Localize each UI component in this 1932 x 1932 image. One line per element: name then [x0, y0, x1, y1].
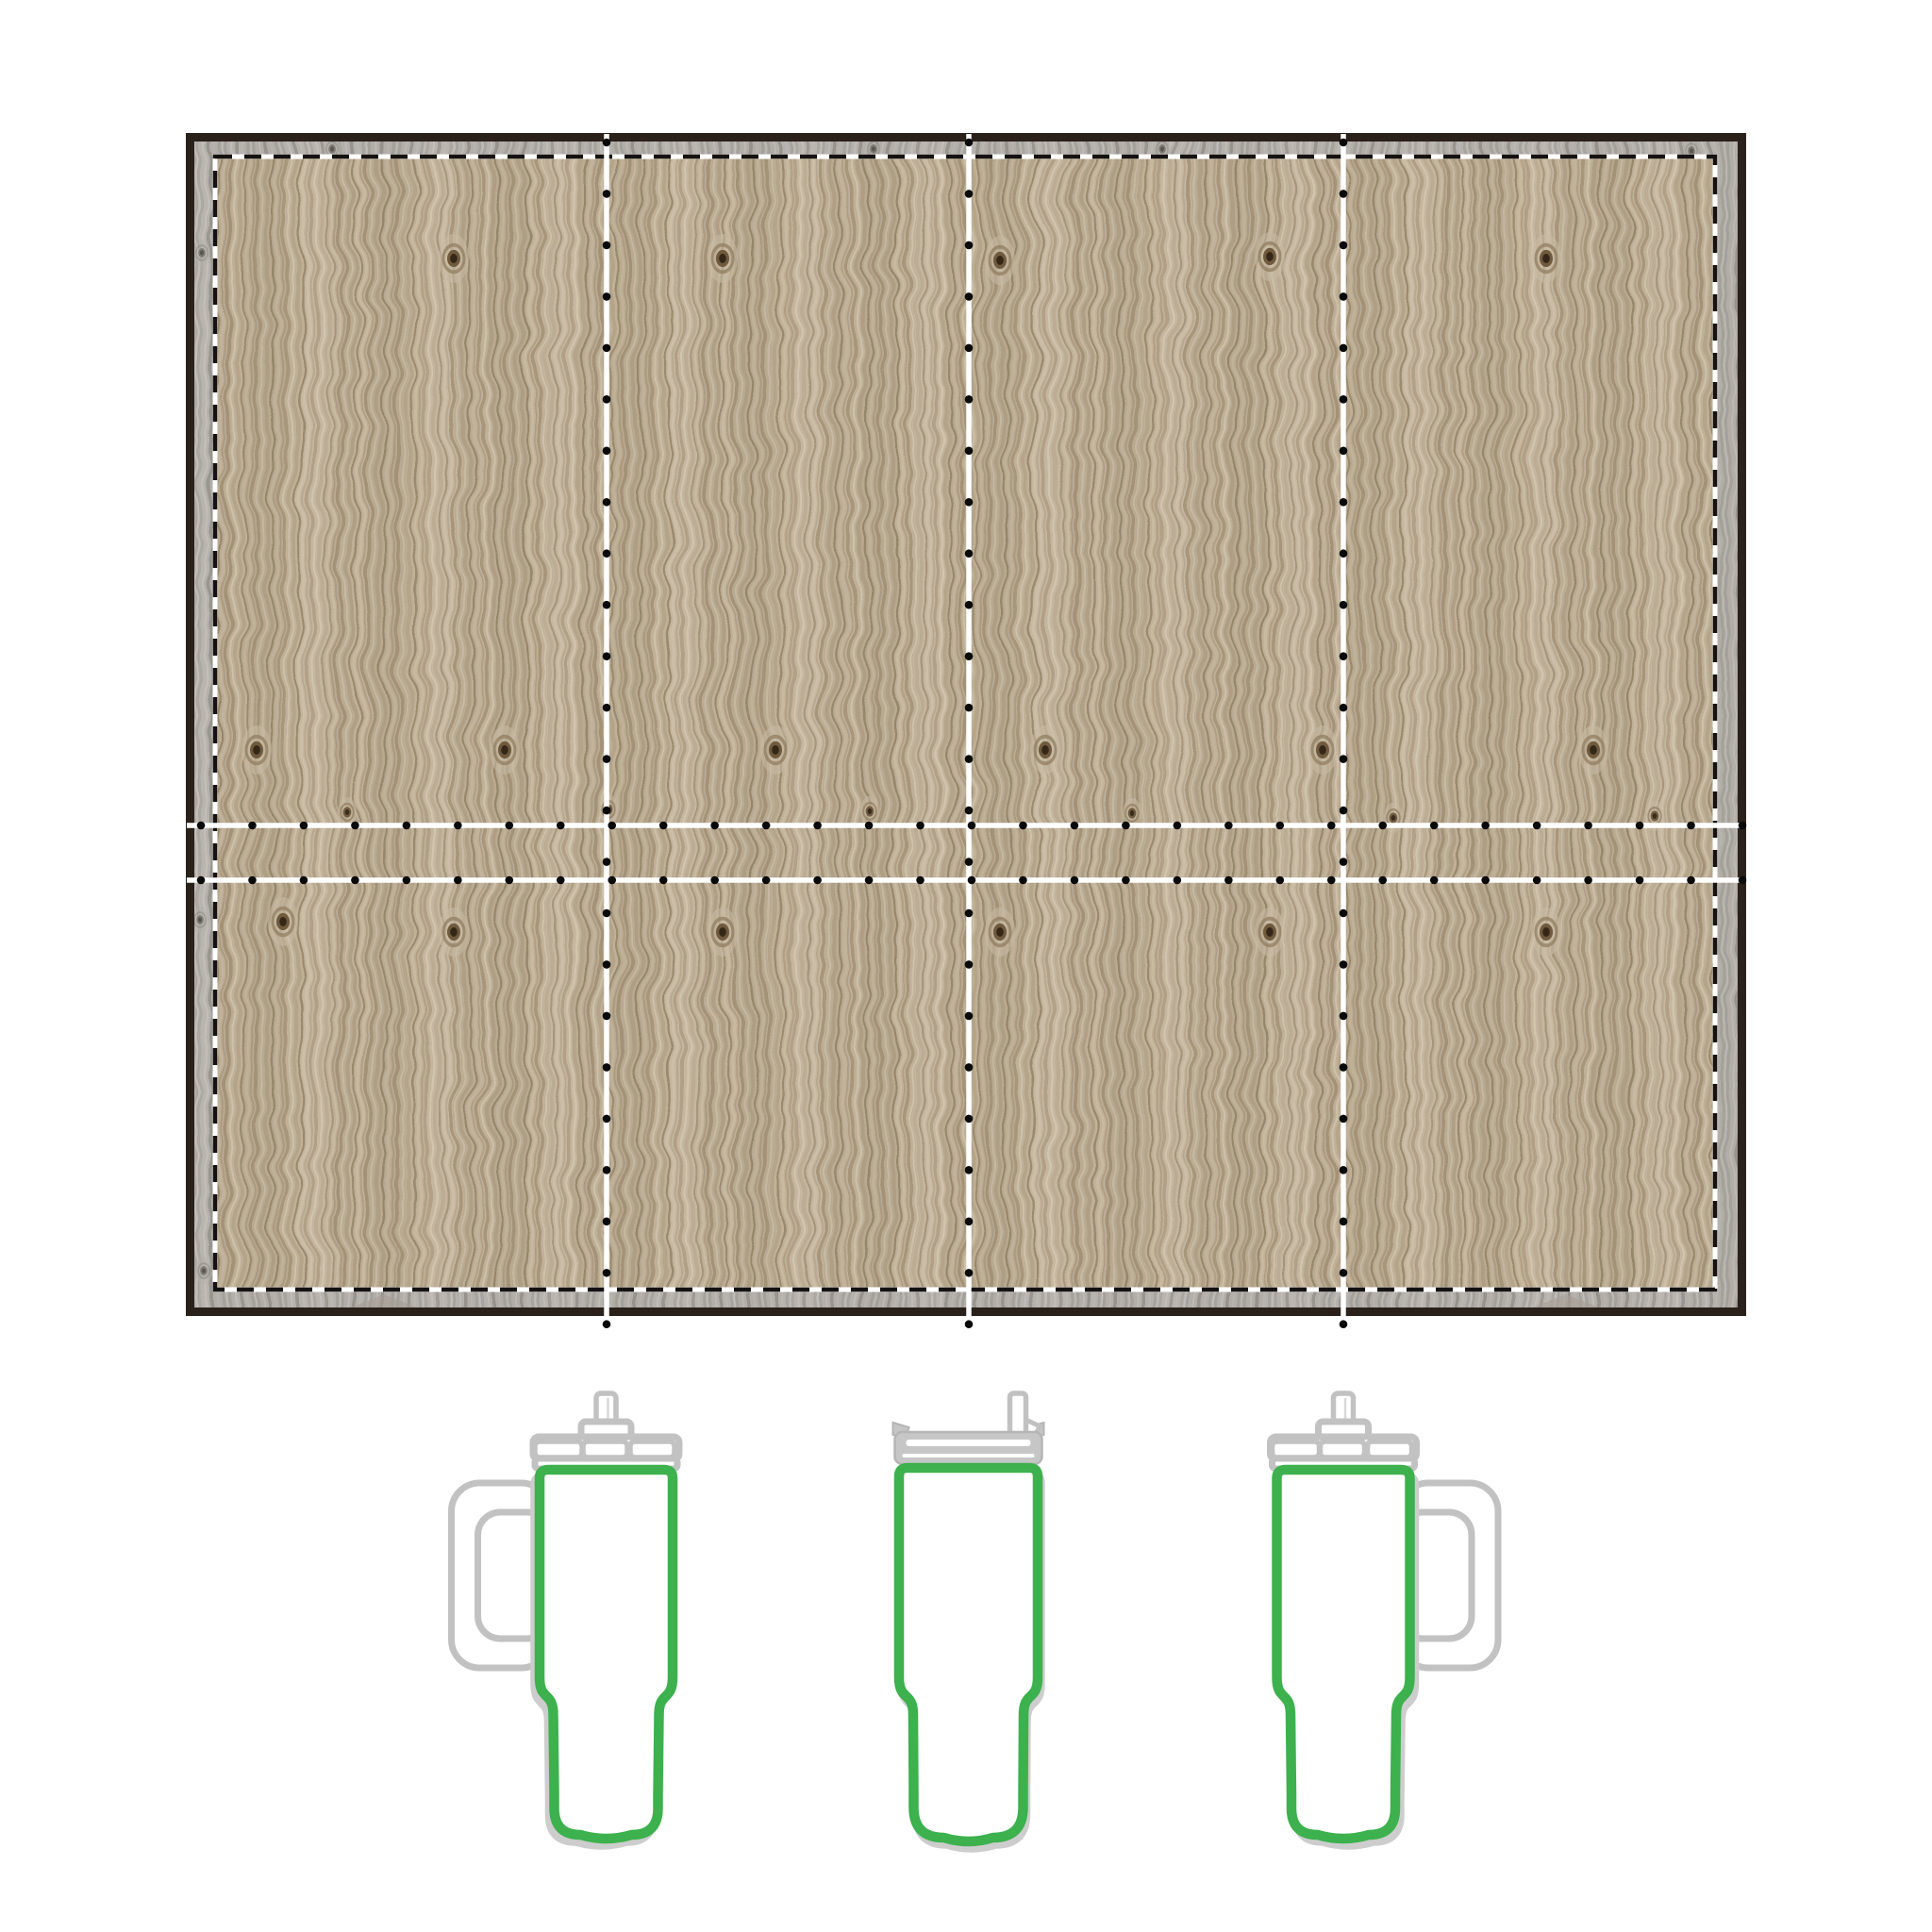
cut-dot [248, 822, 257, 830]
cut-dot [1327, 822, 1336, 830]
shape [996, 256, 1004, 265]
wood-knot [1255, 232, 1285, 281]
shape [1590, 745, 1597, 755]
shape [253, 745, 260, 755]
cut-dot [762, 876, 771, 885]
cut-dot [557, 822, 565, 830]
cut-dot [1533, 822, 1541, 830]
cut-dot [603, 395, 611, 404]
cut-dot [603, 1269, 611, 1277]
cut-dot [603, 1218, 611, 1226]
cut-dot [1019, 822, 1027, 830]
shape [1542, 254, 1550, 263]
cut-dot [603, 344, 611, 353]
cut-dot [1340, 241, 1348, 250]
cut-dot [965, 1166, 974, 1174]
shape [1130, 810, 1135, 816]
cut-dot [506, 876, 514, 885]
wrap-body-outline [1277, 1470, 1410, 1839]
cut-dot [1224, 822, 1233, 830]
cut-dot [1687, 876, 1695, 885]
lid-slot [907, 1440, 1031, 1446]
tumbler-wrap-print-template [0, 0, 1932, 1932]
cut-dot [1340, 1269, 1348, 1277]
cut-dot [608, 822, 616, 830]
lid-cell [630, 1441, 675, 1457]
cut-dot [965, 858, 974, 866]
cut-dot [603, 1166, 611, 1174]
cut-dot [965, 447, 974, 456]
cut-dot [965, 1320, 974, 1328]
wood-knot [708, 234, 738, 283]
cut-dot [1340, 549, 1348, 558]
cut-dot [1584, 822, 1592, 830]
main-wood [177, 119, 1753, 1327]
cut-dot [603, 447, 611, 456]
cut-dot [603, 1012, 611, 1021]
shape [200, 250, 204, 255]
cut-dot [603, 241, 611, 250]
wood-knot [1531, 234, 1561, 283]
tumbler-illustration-3 [1271, 1393, 1499, 1845]
cut-dot [710, 876, 719, 885]
tumbler-illustration-2 [893, 1393, 1044, 1848]
shape [1266, 252, 1274, 261]
cut-dot [1340, 652, 1348, 660]
cut-dot [351, 822, 359, 830]
cut-dot [603, 498, 611, 507]
cut-dot [603, 292, 611, 301]
template-canvas [0, 0, 1932, 1932]
cut-dot [197, 876, 206, 885]
cut-dot [1122, 822, 1130, 830]
shape [996, 927, 1004, 937]
cut-dot [1636, 822, 1644, 830]
shape [1319, 745, 1326, 755]
shape [177, 119, 1753, 1327]
shape [202, 1268, 206, 1273]
cut-dot [557, 876, 565, 885]
shape [1266, 927, 1274, 937]
wood-knot [985, 908, 1015, 957]
shape [1653, 813, 1657, 819]
cut-dot [403, 876, 411, 885]
cut-dot [1224, 876, 1233, 885]
cut-dot [965, 1012, 974, 1021]
cut-dot [659, 876, 668, 885]
shape [279, 917, 287, 926]
cut-dot [965, 960, 974, 969]
cut-dot [1019, 876, 1027, 885]
cut-dot [300, 822, 308, 830]
cut-dot [813, 876, 822, 885]
shape [1542, 927, 1550, 937]
cut-dot [965, 1218, 974, 1226]
shape [450, 927, 458, 937]
wood-knot [760, 725, 791, 774]
shape [1690, 148, 1693, 153]
cut-dot [965, 1269, 974, 1277]
wood-knot [268, 897, 298, 946]
shape [198, 917, 202, 922]
cut-dot [603, 190, 611, 198]
cut-dot [1340, 344, 1348, 353]
cut-dot [603, 960, 611, 969]
cut-dot [1481, 876, 1490, 885]
shape [330, 146, 334, 151]
shape [1160, 146, 1164, 151]
shape [450, 254, 458, 263]
cut-dot [1340, 395, 1348, 404]
wood-knot [985, 236, 1015, 285]
wood-knot [490, 725, 520, 774]
wood-knot [1307, 725, 1338, 774]
cut-dot [603, 704, 611, 712]
lid-cell [1321, 1441, 1365, 1457]
tumbler-illustration-1 [452, 1393, 680, 1845]
wood-knot [1531, 908, 1561, 957]
cut-dot [813, 822, 822, 830]
cut-dot [1340, 1166, 1348, 1174]
cut-dot [965, 1063, 974, 1072]
cut-dot [1340, 858, 1348, 866]
shape [719, 927, 726, 937]
cut-dot [1340, 447, 1348, 456]
cut-dot [1122, 876, 1130, 885]
cut-dot [965, 755, 974, 763]
cut-dot [1533, 876, 1541, 885]
cut-dot [1340, 1012, 1348, 1021]
cut-dot [603, 1320, 611, 1328]
cut-dot [1340, 1115, 1348, 1124]
lid-icon [895, 1432, 1042, 1464]
cut-dot [603, 601, 611, 609]
shape [872, 146, 875, 151]
cut-dot [454, 822, 462, 830]
cut-dot [1378, 876, 1387, 885]
cut-dot [965, 652, 974, 660]
cut-dot [865, 876, 874, 885]
cut-dot [965, 139, 974, 147]
shape [719, 254, 726, 263]
cut-dot [965, 498, 974, 507]
wood-knot [708, 908, 738, 957]
lid-slot-lower [903, 1454, 1035, 1457]
wood-knot [439, 234, 469, 283]
cut-dot [603, 1063, 611, 1072]
lid-cell [1368, 1441, 1412, 1457]
cut-dot [1071, 876, 1079, 885]
cut-dot [248, 876, 257, 885]
cut-dot [965, 549, 974, 558]
wood-knot [1578, 725, 1608, 774]
wood-grain [177, 119, 1753, 1327]
cut-dot [1739, 822, 1747, 830]
cut-dot [1340, 601, 1348, 609]
lid-cell [583, 1441, 627, 1457]
cut-dot [965, 395, 974, 404]
cut-dot [1340, 498, 1348, 507]
cut-dot [965, 241, 974, 250]
cut-dot [965, 292, 974, 301]
cut-dot [659, 822, 668, 830]
cut-dot [1071, 822, 1079, 830]
wood-knot [1384, 803, 1403, 833]
cut-dot [965, 807, 974, 815]
cut-dot [506, 822, 514, 830]
shape [1041, 745, 1049, 755]
cut-dot [1276, 822, 1285, 830]
cut-dot [603, 909, 611, 918]
cut-dot [603, 652, 611, 660]
wood-knot [1030, 725, 1060, 774]
cut-dot [454, 876, 462, 885]
wood-knot [193, 240, 210, 267]
cut-dot [965, 344, 974, 353]
cut-dot [1430, 876, 1439, 885]
wood-knot [1255, 908, 1285, 957]
cut-dot [300, 876, 308, 885]
cut-dot [1340, 960, 1348, 969]
cut-dot [1636, 876, 1644, 885]
wood-knot [195, 1257, 212, 1285]
cut-dot [916, 876, 924, 885]
lid-cell [535, 1441, 582, 1457]
cut-dot [1340, 807, 1348, 815]
cut-dot [603, 139, 611, 147]
wood-knot [241, 725, 272, 774]
cut-dot [403, 822, 411, 830]
cut-dot [968, 822, 976, 830]
cut-dot [1584, 876, 1592, 885]
shape [1391, 815, 1396, 821]
cut-dot [1340, 292, 1348, 301]
cut-dot [1340, 909, 1348, 918]
cut-dot [1340, 1063, 1348, 1072]
shape [772, 745, 779, 755]
cut-dot [603, 858, 611, 866]
shape [501, 745, 508, 755]
shape [345, 809, 350, 815]
cut-dot [965, 909, 974, 918]
cut-dot [351, 876, 359, 885]
cut-dot [1430, 822, 1439, 830]
cut-dot [603, 1115, 611, 1124]
cut-dot [762, 822, 771, 830]
cut-dot [1739, 876, 1747, 885]
cut-dot [1276, 876, 1285, 885]
cut-dot [968, 876, 976, 885]
cut-dot [865, 822, 874, 830]
wood-knot [439, 908, 469, 957]
cut-dot [965, 601, 974, 609]
cut-dot [1174, 876, 1182, 885]
shape [868, 808, 873, 814]
cut-dot [965, 1115, 974, 1124]
cut-dot [1687, 822, 1695, 830]
cut-dot [1340, 1218, 1348, 1226]
cut-dot [1327, 876, 1336, 885]
cut-dot [603, 549, 611, 558]
cut-dot [1481, 822, 1490, 830]
wrap-body-outline [899, 1468, 1038, 1841]
cut-dot [608, 876, 616, 885]
straw-icon [1010, 1393, 1026, 1434]
cut-dot [710, 822, 719, 830]
lid-cell [1273, 1441, 1320, 1457]
cut-dot [1340, 1320, 1348, 1328]
cut-dot [1340, 139, 1348, 147]
wrap-body-outline [540, 1470, 673, 1839]
cut-dot [1174, 822, 1182, 830]
cut-dot [965, 190, 974, 198]
cut-dot [1378, 822, 1387, 830]
cut-dot [1340, 755, 1348, 763]
cut-dot [603, 755, 611, 763]
cut-dot [965, 704, 974, 712]
cut-dot [1340, 704, 1348, 712]
cut-dot [916, 822, 924, 830]
cut-dot [603, 807, 611, 815]
cut-dot [1340, 190, 1348, 198]
cut-dot [197, 822, 206, 830]
